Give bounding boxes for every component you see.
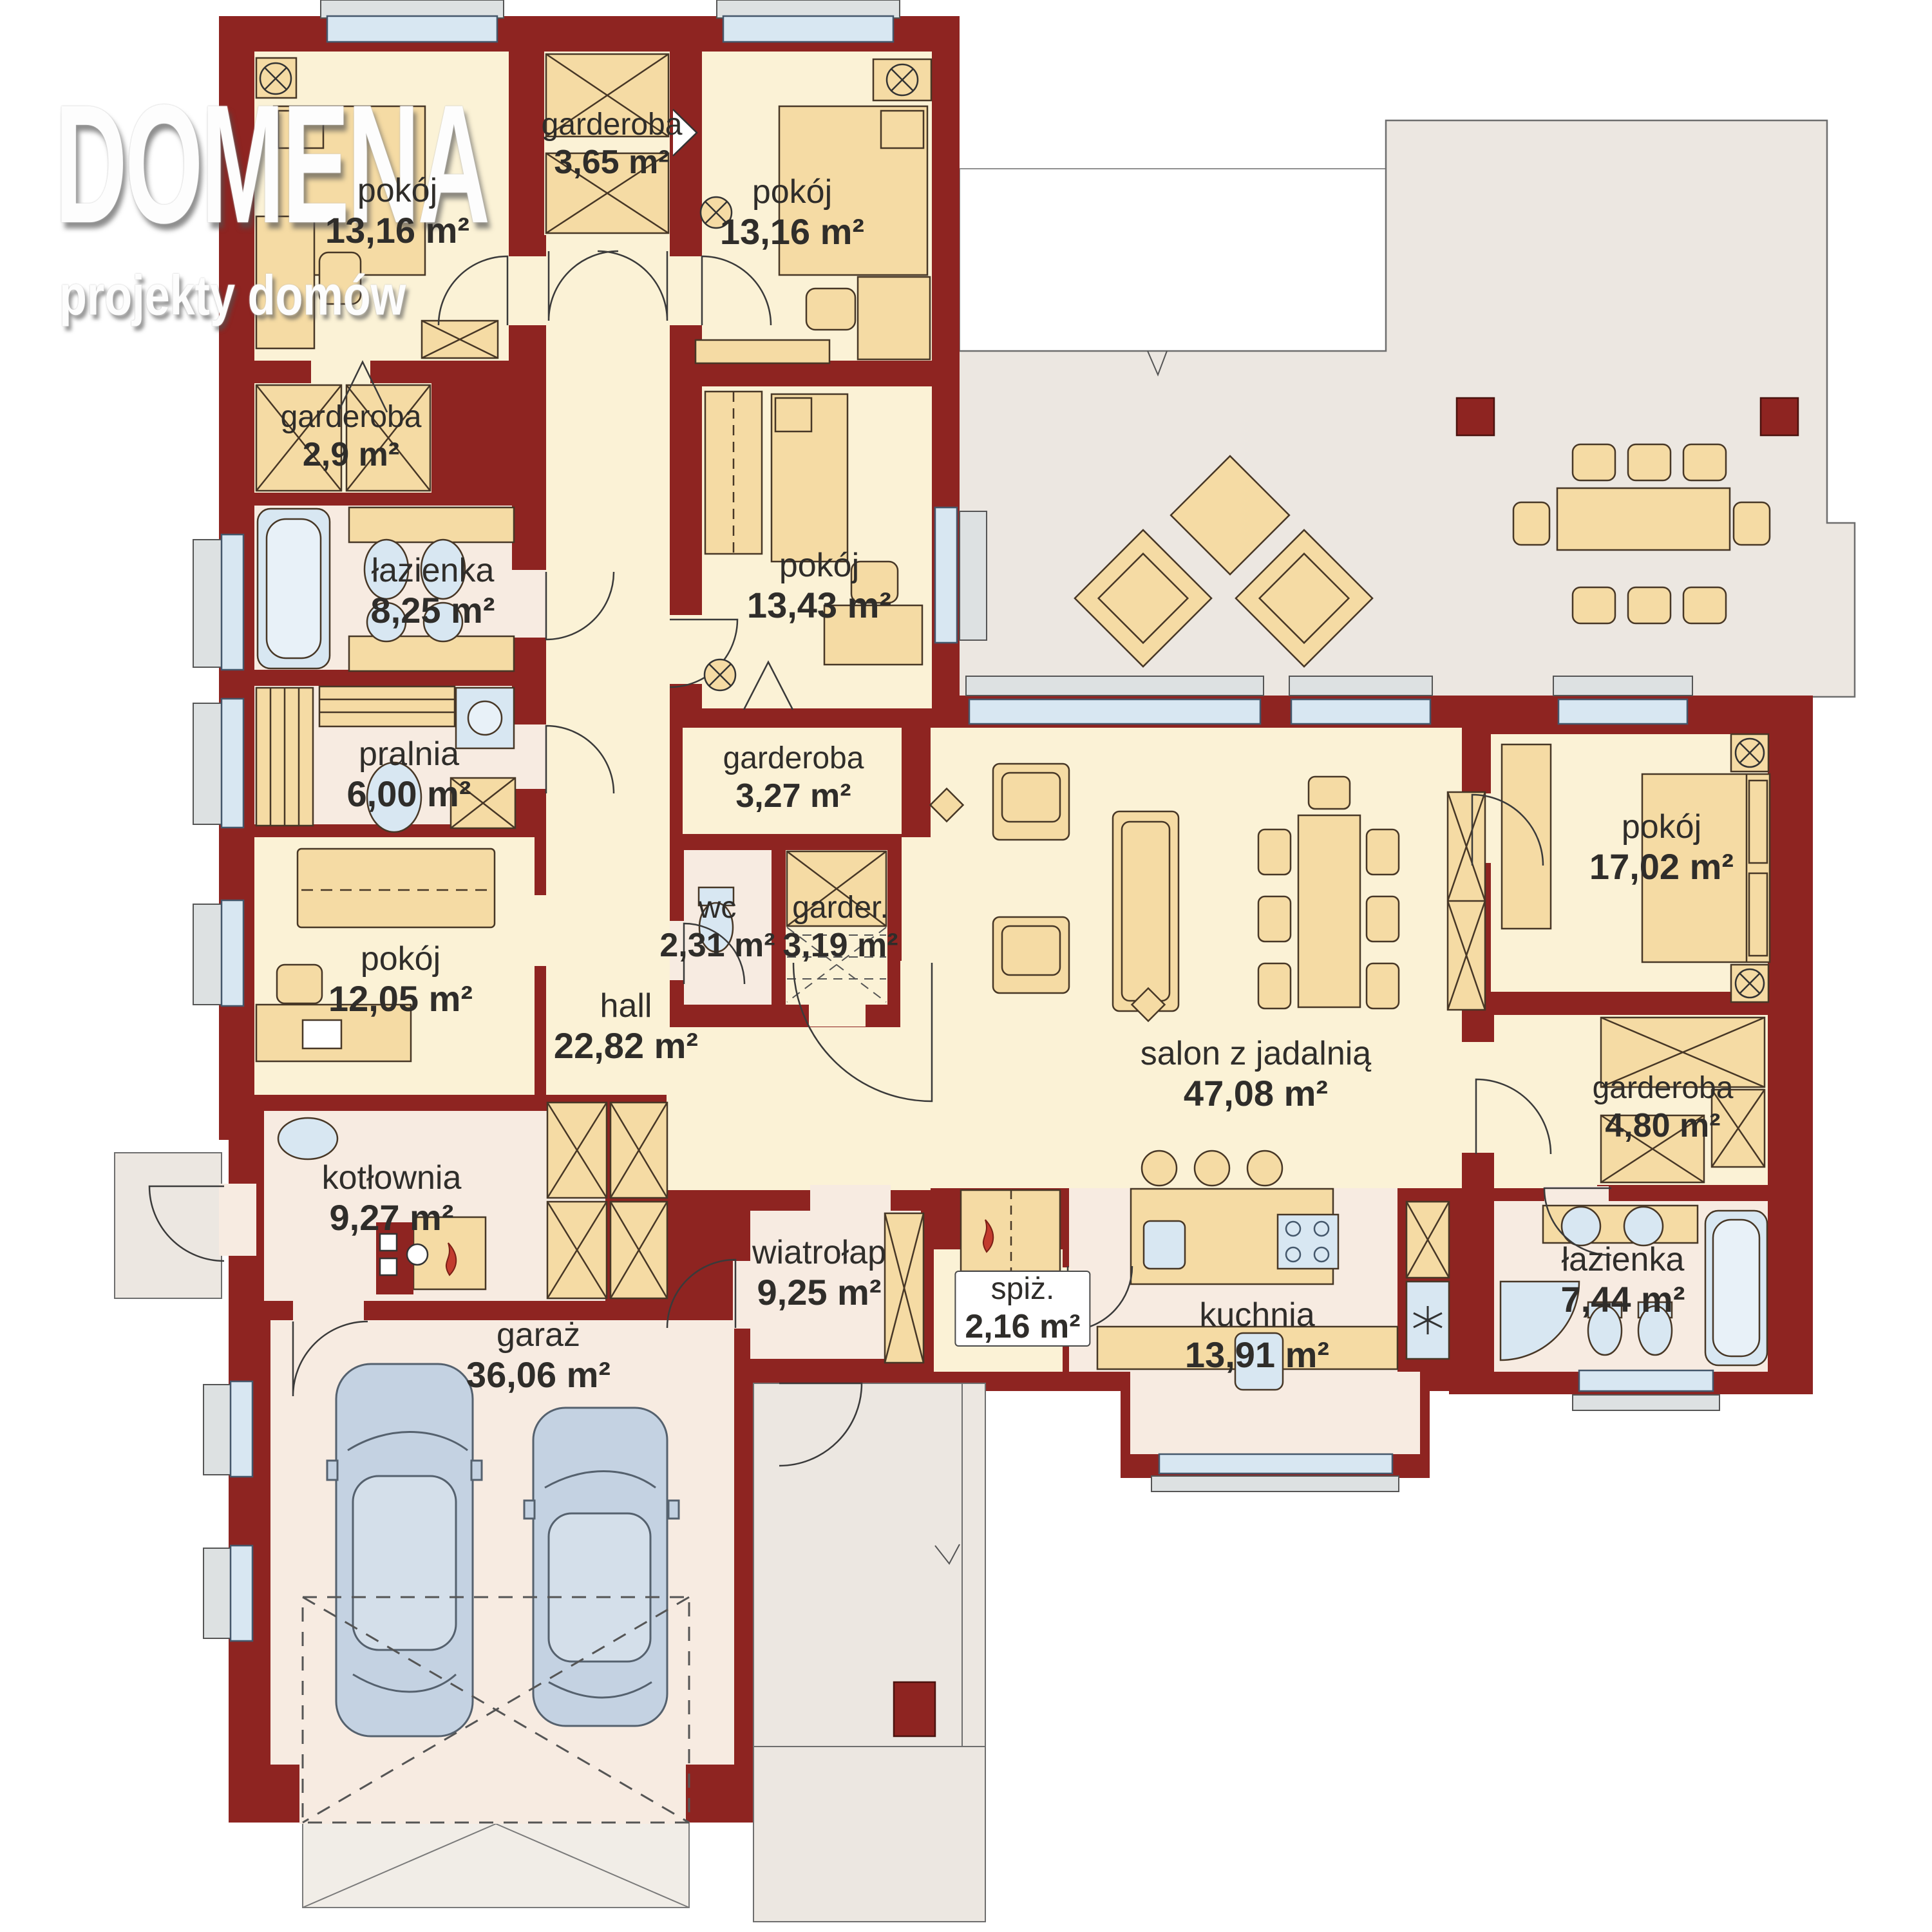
laundry-sink [367,762,421,832]
desk-chair [806,289,855,330]
armchair [993,764,1069,840]
sink [1624,1207,1663,1245]
bar-stool [1142,1151,1177,1186]
bed [772,394,848,562]
desk [858,277,930,359]
car [524,1408,679,1726]
fireplace [961,1190,1060,1271]
brand-tagline: projekty domów [59,263,406,328]
desk [824,605,922,665]
wardrobe-icon [885,1213,923,1363]
wardrobe-icon [1712,1090,1765,1167]
closet [1502,744,1551,929]
sink [367,603,406,641]
laundry-shelf [319,687,455,726]
sink [424,603,462,641]
island-sink [1144,1221,1185,1269]
garage-roof-apron [303,1823,689,1908]
counter-sink [1235,1333,1283,1390]
bidet [421,540,465,599]
desk-chair [277,965,322,1003]
sauna-bench [256,688,313,826]
bed [779,106,927,275]
toilet [365,540,408,599]
corridor [546,235,670,837]
toilet [1588,1302,1622,1355]
sofa-bed [298,849,495,927]
wardrobe-icon [256,385,341,491]
armchair [993,917,1069,993]
terrace-pillar [1457,398,1494,435]
side-porch [115,1153,222,1298]
dresser [696,340,829,363]
sofa [1113,811,1179,1011]
closet [705,392,762,554]
bathtub [1705,1211,1767,1365]
room-hall-lower [667,1095,931,1190]
bar-stool [1195,1151,1229,1186]
vanity [349,507,514,542]
entrance-walkway [753,1383,985,1922]
bed [1642,774,1770,962]
bathtub [258,509,330,668]
cooktop [1278,1215,1338,1269]
brand-logo: DOMENA [55,68,488,261]
monitor [303,1020,341,1048]
car [327,1364,482,1736]
floor-plan-page: DOMENA projekty domów pokój13,16 m² gard… [0,0,1932,1932]
bath-counter [349,636,514,671]
bar-stool [1247,1151,1282,1186]
right-hallway [1494,1015,1597,1188]
wardrobe-icon [546,54,668,137]
room-garderoba-3 [683,728,902,834]
wardrobe-icon [1601,1018,1765,1087]
washing-machine [456,688,514,748]
cabinet-icon [451,778,515,828]
walkway-pillar [894,1682,935,1736]
desk-chair [851,562,898,603]
garage-door-zone [299,1765,686,1824]
roof-overhang-outline [960,169,1386,351]
utility-sink [278,1118,337,1159]
wardrobe-icon [1601,1115,1704,1182]
terrace-pillar [1761,398,1798,435]
bookshelf [1448,792,1485,1010]
bidet [1638,1302,1672,1355]
wardrobe-icon [346,385,430,491]
wardrobe-icon [546,153,668,233]
wardrobe-icon [422,321,498,358]
